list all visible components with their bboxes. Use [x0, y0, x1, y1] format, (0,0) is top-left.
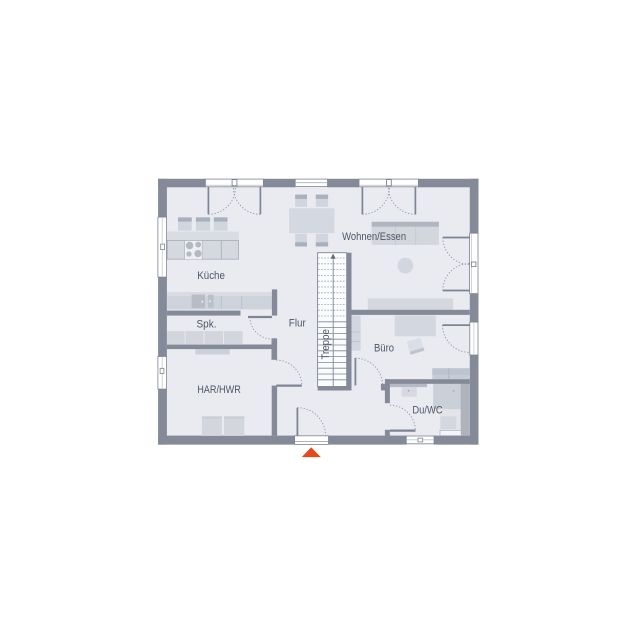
svg-text:HAR/HWR: HAR/HWR	[197, 384, 241, 396]
svg-text:Spk.: Spk.	[197, 318, 217, 330]
svg-text:Treppe: Treppe	[320, 329, 332, 360]
svg-text:Büro: Büro	[374, 343, 394, 355]
svg-text:Wohnen/Essen: Wohnen/Essen	[342, 231, 406, 243]
svg-text:Flur: Flur	[289, 317, 306, 329]
svg-text:Küche: Küche	[197, 270, 225, 282]
svg-text:Du/WC: Du/WC	[412, 404, 442, 416]
